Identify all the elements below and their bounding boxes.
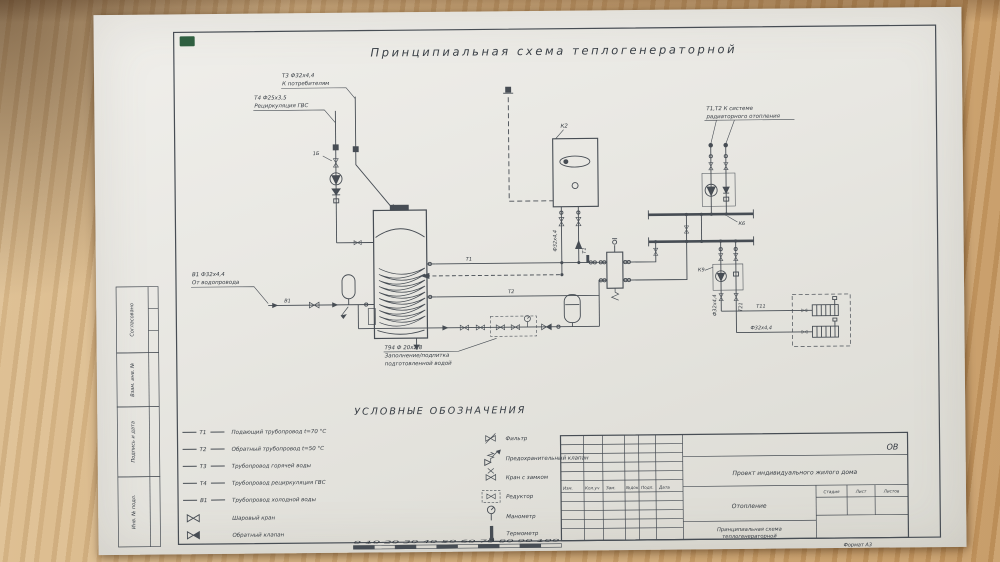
svg-text:Трубопровод холодной воды: Трубопровод холодной воды bbox=[232, 497, 317, 504]
stamp-sign-date: Подпись и дата bbox=[130, 421, 136, 462]
t2-return-line: Т2 bbox=[436, 280, 607, 297]
ruler-numbers: 0 10 20 30 40 50 60 70 80 90 100 bbox=[353, 538, 561, 545]
branch-dn-label: Ф32х4,4 bbox=[750, 325, 772, 331]
svg-text:Т94 Ф 20х2,8: Т94 Ф 20х2,8 bbox=[385, 345, 423, 351]
format-note: Формат А3 bbox=[844, 542, 873, 548]
svg-text:Т3 Ф32х4,4: Т3 Ф32х4,4 bbox=[282, 73, 315, 79]
k9-dn-label: Ф32х4,4 bbox=[712, 294, 718, 316]
fill-line-t94 bbox=[358, 294, 599, 337]
svg-text:Трубопровод рециркуляция ГВС: Трубопровод рециркуляция ГВС bbox=[232, 480, 326, 487]
svg-text:Стадия: Стадия bbox=[823, 489, 840, 494]
drawing-name-2: теплогенераторной bbox=[722, 534, 777, 541]
legend: УСЛОВНЫЕ ОБОЗНАЧЕНИЯ Т1Подающий трубопро… bbox=[182, 404, 590, 544]
svg-text:Зам.: Зам. bbox=[606, 485, 616, 490]
svg-text:радиаторного отопления: радиаторного отопления bbox=[705, 114, 780, 121]
svg-text:В1 Ф32х4,4: В1 Ф32х4,4 bbox=[192, 272, 225, 278]
safety-valve-icon bbox=[485, 450, 501, 465]
t3-hot-water-riser bbox=[353, 96, 394, 209]
expansion-vessel bbox=[342, 275, 355, 299]
pos-1b-label: 1Б bbox=[313, 151, 320, 157]
b1-cold-water-line: В1 Ф32х4,4 От водопровода В1 bbox=[191, 270, 375, 330]
title-block: Изм. Кол.уч Зам. №док. Подп. Дата ОВ Про… bbox=[560, 432, 908, 541]
svg-text:От водопровода: От водопровода bbox=[192, 280, 240, 286]
k6-label: К6 bbox=[738, 221, 745, 227]
stamp-replace-inv: Взам. инв. № bbox=[130, 363, 136, 397]
svg-text:№док.: №док. bbox=[625, 485, 640, 490]
svg-text:Кол.уч: Кол.уч bbox=[585, 485, 600, 490]
reducer-icon bbox=[482, 490, 500, 502]
t3-pipe-label: Т3 Ф32х4,4 К потребителям bbox=[281, 73, 355, 100]
svg-text:Трубопровод горячей воды: Трубопровод горячей воды bbox=[232, 463, 312, 470]
ball-valve-icon bbox=[187, 515, 199, 522]
separator-drain bbox=[612, 288, 619, 300]
svg-text:Изм.: Изм. bbox=[563, 486, 573, 491]
boiler-k2: К2 Ф32х4,4 Т1 bbox=[551, 123, 598, 274]
pump-group-k9: К9 Ф32х4,4 Т21 bbox=[698, 240, 745, 333]
k2-label: К2 bbox=[560, 124, 568, 130]
svg-text:Т2: Т2 bbox=[508, 289, 514, 295]
svg-text:Т3: Т3 bbox=[200, 464, 207, 470]
svg-text:К потребителям: К потребителям bbox=[282, 81, 329, 87]
svg-text:Рециркуляция ГВС: Рециркуляция ГВС bbox=[254, 103, 308, 110]
radiator-system-label: Т1,Т2 К системе радиаторного отопления bbox=[704, 105, 794, 144]
k2-return-dn-label: Ф32х4,4 bbox=[553, 230, 559, 252]
schematic-drawing: Согласовано Взам. инв. № Подпись и дата … bbox=[93, 7, 966, 555]
svg-text:Обратный трубопровод t=50 °С: Обратный трубопровод t=50 °С bbox=[232, 446, 325, 453]
t94-label: Т94 Ф 20х2,8 Заполнение/подпитка подгото… bbox=[384, 338, 497, 367]
svg-text:Т4: Т4 bbox=[200, 481, 207, 487]
section-name: Отопление bbox=[732, 503, 767, 510]
svg-text:Манометр: Манометр bbox=[506, 514, 536, 520]
membrane-expansion-tank bbox=[564, 295, 580, 323]
svg-text:Т2: Т2 bbox=[200, 447, 207, 453]
svg-text:Листов: Листов bbox=[883, 488, 900, 493]
green-sticker bbox=[180, 36, 195, 46]
svg-text:В1: В1 bbox=[200, 498, 207, 504]
stamp-approved: Согласовано bbox=[129, 303, 135, 337]
svg-text:Предохранительный клапан: Предохранительный клапан bbox=[506, 455, 589, 462]
project-name: Проект индивидуального жилого дома bbox=[732, 469, 857, 477]
svg-text:Т1: Т1 bbox=[466, 257, 472, 263]
svg-text:Обратный клапан: Обратный клапан bbox=[232, 532, 284, 539]
radiator bbox=[812, 318, 838, 337]
svg-text:Редуктор: Редуктор bbox=[506, 494, 534, 500]
svg-text:подготовленной водой: подготовленной водой bbox=[385, 361, 452, 368]
scale-ruler: 0 10 20 30 40 50 60 70 80 90 100 bbox=[353, 538, 561, 549]
t4-recirculation-riser: 1Б bbox=[312, 111, 342, 243]
locked-valve-icon bbox=[486, 468, 496, 480]
svg-text:Дата: Дата bbox=[658, 485, 670, 490]
t1-supply-line: Т1 bbox=[436, 255, 601, 265]
manometer-icon bbox=[487, 506, 495, 520]
svg-text:Т1: Т1 bbox=[199, 430, 206, 436]
svg-text:Лист: Лист bbox=[855, 489, 867, 494]
t11-label: Т11 bbox=[756, 304, 765, 310]
condensate-dashed-line bbox=[422, 272, 563, 278]
legend-heading: УСЛОВНЫЕ ОБОЗНАЧЕНИЯ bbox=[354, 405, 526, 418]
svg-text:Подающий трубопровод t=70 °С: Подающий трубопровод t=70 °С bbox=[231, 429, 326, 436]
svg-text:Т1,Т2 К системе: Т1,Т2 К системе bbox=[706, 106, 753, 112]
margin-stamp-column: Согласовано Взам. инв. № Подпись и дата … bbox=[116, 287, 160, 547]
svg-text:Заполнение/подпитка: Заполнение/подпитка bbox=[385, 353, 450, 360]
check-valve-icon bbox=[187, 532, 199, 539]
filter-icon bbox=[485, 433, 495, 443]
k9-label: К9 bbox=[698, 267, 705, 273]
hydraulic-separator bbox=[599, 239, 631, 301]
stamp-inv-original: Инв. № подл. bbox=[131, 495, 137, 530]
svg-text:Фильтр: Фильтр bbox=[505, 436, 527, 442]
svg-text:Кран с замком: Кран с замком bbox=[506, 475, 548, 481]
drawing-title: Принципиальная схема теплогенераторной bbox=[370, 42, 737, 60]
svg-text:Подп.: Подп. bbox=[641, 485, 654, 490]
heating-coil bbox=[379, 268, 426, 326]
flue-line bbox=[503, 87, 553, 201]
t4-pipe-label: Т4 Ф25х3,5 Рециркуляция ГВС bbox=[253, 95, 335, 124]
svg-text:Т4 Ф25х3,5: Т4 Ф25х3,5 bbox=[254, 95, 287, 101]
radiator-branch-lines: Т11 Ф32х4,4 bbox=[721, 303, 812, 332]
k2-supply-t1-label: Т1 bbox=[582, 247, 588, 253]
radiator bbox=[812, 297, 838, 316]
svg-text:Термометр: Термометр bbox=[506, 531, 539, 537]
t21-label: Т21 bbox=[738, 302, 744, 311]
b1-tag: В1 bbox=[284, 298, 291, 304]
discipline-code: ОВ bbox=[887, 442, 899, 451]
radiators-box bbox=[792, 294, 850, 347]
svg-text:Шаровый кран: Шаровый кран bbox=[232, 515, 275, 521]
drawing-name-1: Принципиальная схема bbox=[717, 527, 782, 534]
drawing-sheet: Согласовано Взам. инв. № Подпись и дата … bbox=[93, 7, 966, 555]
